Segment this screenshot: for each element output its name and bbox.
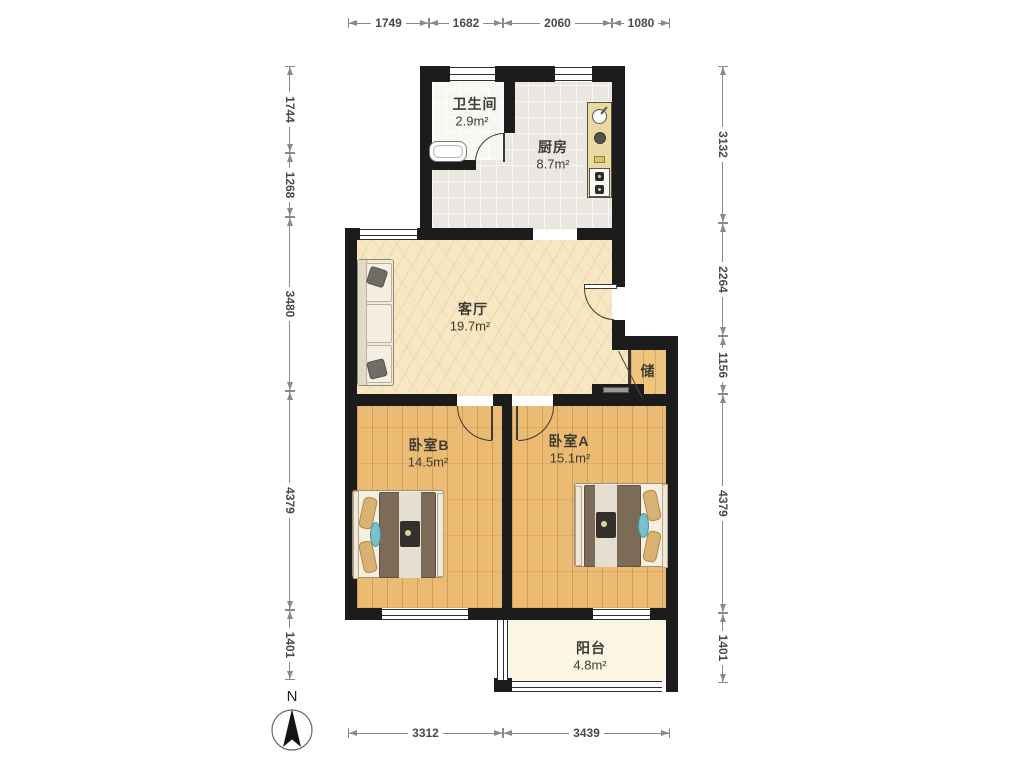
- dim-top-2: 1682: [429, 16, 503, 30]
- stove-burner: [595, 172, 604, 181]
- cutting-board: [594, 156, 605, 163]
- dim-bottom-2: 3439: [503, 726, 670, 740]
- dim-value: 1749: [371, 17, 406, 30]
- bathroom-label: 卫生间: [453, 94, 498, 114]
- bed-footboard: [575, 486, 582, 566]
- balcony-front-window: [512, 681, 662, 692]
- bed-headboard: [353, 491, 359, 579]
- dim-value: 3132: [717, 127, 730, 162]
- balcony-area: 4.8m²: [573, 658, 606, 673]
- wall-segment: [417, 228, 533, 240]
- dim-left-5: 1401: [283, 610, 297, 680]
- dim-right-4: 4379: [716, 394, 730, 613]
- wall-segment: [468, 608, 512, 620]
- wall-segment: [345, 394, 457, 406]
- floor-plan: 卫生间 2.9m² 厨房 8.7m² 客厅 19.7m² 储 卧室B 14.5m…: [0, 0, 1018, 759]
- dim-top-1: 1749: [348, 16, 429, 30]
- wall-segment: [502, 406, 512, 614]
- bed-footboard: [437, 493, 444, 577]
- kitchen-label: 厨房: [538, 137, 568, 157]
- wall-segment: [612, 320, 625, 337]
- wall-segment: [494, 678, 512, 692]
- dim-value: 4379: [284, 483, 297, 518]
- dim-right-3: 1156: [716, 336, 730, 394]
- shoe-cabinet: [603, 387, 629, 393]
- sofa-cushion: [366, 304, 392, 343]
- bed-bedroom-a: [574, 483, 667, 567]
- wall-segment: [553, 394, 678, 406]
- wall-segment: [577, 228, 625, 240]
- bedroom-b-area: 14.5m²: [408, 455, 448, 470]
- wall-segment: [612, 66, 625, 240]
- dim-right-5: 1401: [716, 613, 730, 683]
- living-room-label: 客厅: [458, 299, 488, 319]
- kitchen-window: [555, 67, 592, 81]
- dim-value: 1080: [624, 17, 659, 30]
- bed-quilt: [400, 521, 420, 547]
- bed-quilt: [596, 512, 616, 538]
- bedroom-a-window: [593, 609, 650, 620]
- dim-right-1: 3132: [716, 66, 730, 223]
- bedroom-b-label: 卧室B: [408, 435, 449, 455]
- dim-value: 1401: [717, 631, 730, 666]
- bed-headboard: [662, 484, 668, 568]
- dim-value: 2060: [540, 17, 575, 30]
- wall-segment: [512, 608, 593, 620]
- dim-right-2: 2264: [716, 223, 730, 336]
- bedroom-b-window: [382, 609, 468, 620]
- kitchen-appliance: [594, 132, 606, 144]
- sofa: [357, 259, 394, 386]
- wall-segment: [612, 240, 625, 287]
- kitchen-sink: [592, 109, 607, 124]
- dim-left-2: 1268: [283, 153, 297, 217]
- bedroom-a-area: 15.1m²: [550, 451, 590, 466]
- bathroom-window: [450, 67, 495, 81]
- bed-accent-pillow: [370, 522, 381, 547]
- dim-value: 4379: [717, 486, 730, 521]
- wall-segment: [493, 394, 512, 406]
- dim-value: 1156: [717, 348, 730, 382]
- stove-burner: [595, 185, 604, 194]
- bed-bedroom-b: [352, 490, 444, 578]
- dim-left-3: 3480: [283, 217, 297, 391]
- dim-value: 1744: [284, 92, 297, 127]
- north-compass-icon: [264, 700, 320, 756]
- wall-segment: [345, 608, 382, 620]
- wall-segment: [504, 80, 515, 133]
- living-room-area: 19.7m²: [450, 319, 490, 334]
- balcony-side-window: [497, 620, 508, 680]
- bathtub: [429, 141, 467, 162]
- dim-value: 3312: [408, 727, 443, 740]
- dim-value: 1682: [449, 17, 484, 30]
- living-room-window: [360, 229, 417, 240]
- dim-value: 3439: [569, 727, 604, 740]
- balcony-label: 阳台: [576, 638, 606, 658]
- dim-value: 1401: [284, 628, 297, 663]
- dim-value: 2264: [717, 262, 730, 297]
- bathroom-area: 2.9m²: [455, 114, 488, 129]
- dim-top-4: 1080: [612, 16, 670, 30]
- dim-bottom-1: 3312: [348, 726, 503, 740]
- dim-top-3: 2060: [503, 16, 612, 30]
- dim-value: 3480: [284, 287, 297, 322]
- bed-accent-pillow: [638, 513, 649, 538]
- dim-left-4: 4379: [283, 391, 297, 610]
- wall-segment: [650, 608, 678, 620]
- dim-left-1: 1744: [283, 66, 297, 153]
- bedroom-a-label: 卧室A: [548, 431, 589, 451]
- kitchen-area: 8.7m²: [536, 157, 569, 172]
- dim-value: 1268: [284, 168, 297, 203]
- storage-label: 储: [641, 361, 656, 381]
